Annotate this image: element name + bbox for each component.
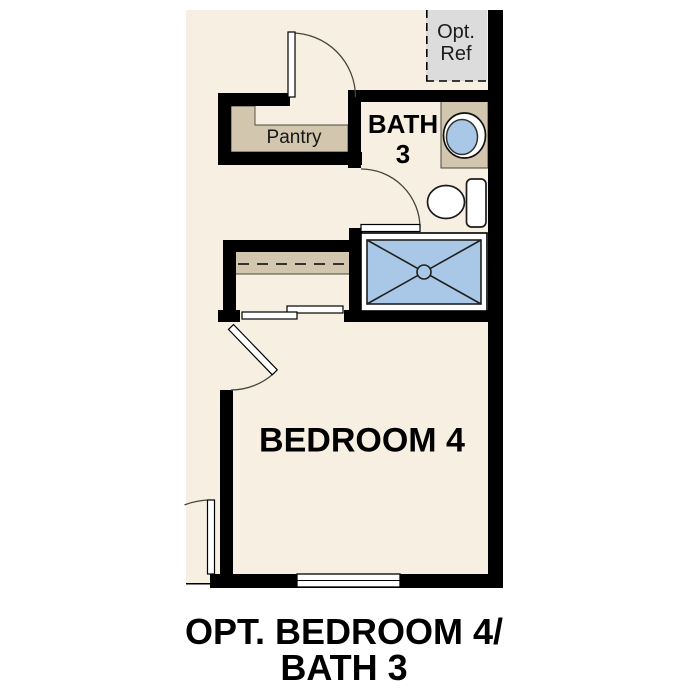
door-leaf [361, 225, 420, 232]
wall-segment [220, 390, 233, 588]
bath-line2: 3 [368, 139, 438, 169]
shower [361, 233, 487, 311]
wall-segment [348, 90, 503, 102]
bypass-door-panel [242, 312, 297, 319]
wall-segment [218, 152, 362, 165]
pantry-label: Pantry [267, 127, 322, 149]
plan-caption: OPT. BEDROOM 4/ BATH 3 [185, 614, 503, 686]
wall-segment [218, 310, 240, 322]
toilet-bowl [428, 186, 465, 219]
opt-ref-line1: Opt. [437, 21, 475, 43]
wall-segment [223, 240, 236, 322]
floorplan-drawing [0, 0, 687, 687]
vanity-sink [444, 113, 486, 158]
opt-ref-label: Opt. Ref [437, 21, 475, 65]
closet-shelf [236, 252, 349, 274]
toilet-tank [467, 179, 487, 227]
wall-segment [348, 90, 361, 168]
bath-label: BATH 3 [368, 109, 438, 169]
wall-segment [223, 240, 362, 252]
window [297, 574, 400, 587]
bath-line1: BATH [368, 109, 438, 139]
opt-ref-line2: Ref [437, 43, 475, 65]
door-leaf [288, 32, 295, 97]
shower-drain [417, 265, 431, 279]
sink-basin [447, 120, 478, 155]
caption-line2: BATH 3 [185, 650, 503, 686]
floorplan-page: Opt. Ref Pantry BATH 3 BEDROOM 4 OPT. BE… [0, 0, 687, 687]
door-leaf [208, 500, 215, 574]
bedroom-label: BEDROOM 4 [259, 422, 465, 461]
caption-line1: OPT. BEDROOM 4/ [185, 614, 503, 650]
